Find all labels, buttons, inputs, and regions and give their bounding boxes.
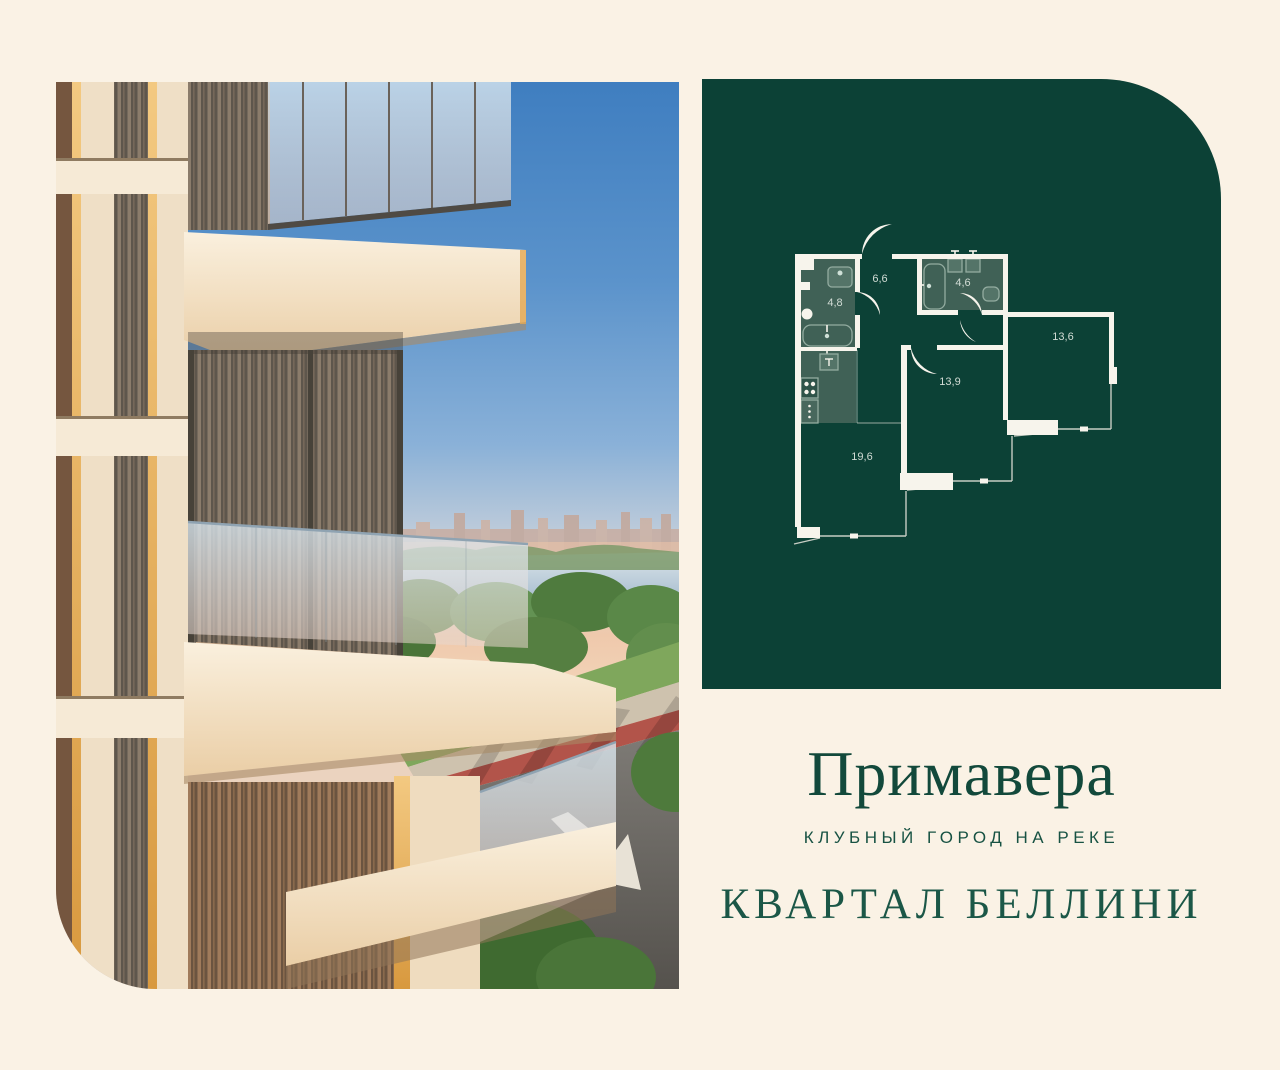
radiator-icon bbox=[801, 282, 810, 290]
room-area-label: 19,6 bbox=[851, 451, 872, 463]
bedroom2-door-arc bbox=[911, 348, 937, 374]
window-bedroom2 bbox=[900, 473, 953, 490]
bathroom-door-arc bbox=[857, 292, 880, 315]
shaft-column bbox=[801, 259, 814, 270]
project-title: Примавера bbox=[702, 740, 1221, 807]
bedroom-door-arc bbox=[960, 320, 976, 342]
window-bedroom bbox=[1007, 420, 1058, 435]
window-bedroom-side bbox=[1109, 367, 1117, 384]
sink2-icon bbox=[948, 259, 962, 272]
stove-icon bbox=[801, 378, 818, 398]
floor-plan: 6,6 4,8 4,6 13,6 13,9 19,6 bbox=[790, 210, 1130, 550]
quarter-title: КВАРТАЛ БЕЛЛИНИ bbox=[702, 880, 1221, 929]
room-area-label: 4,6 bbox=[955, 277, 970, 289]
washer-icon bbox=[828, 267, 852, 287]
window-living bbox=[797, 527, 820, 538]
floorplan-panel: 6,6 4,8 4,6 13,6 13,9 19,6 bbox=[702, 79, 1221, 689]
room-area-label: 13,9 bbox=[939, 376, 960, 388]
room-area-label: 13,6 bbox=[1052, 331, 1073, 343]
sink-bowl-icon bbox=[802, 309, 813, 320]
glazing-ticks bbox=[850, 427, 1088, 539]
room-area-label: 4,8 bbox=[827, 297, 842, 309]
entry-door-arc bbox=[862, 224, 892, 254]
room-area-label: 6,6 bbox=[872, 273, 887, 285]
building-photo-art bbox=[56, 82, 679, 989]
promo-card: 6,6 4,8 4,6 13,6 13,9 19,6 Примавера КЛУ… bbox=[0, 0, 1280, 1070]
building-photo bbox=[56, 82, 679, 989]
project-tagline: КЛУБНЫЙ ГОРОД НА РЕКЕ bbox=[702, 828, 1221, 848]
sink3-icon bbox=[966, 259, 980, 272]
toilet-icon bbox=[983, 287, 999, 301]
